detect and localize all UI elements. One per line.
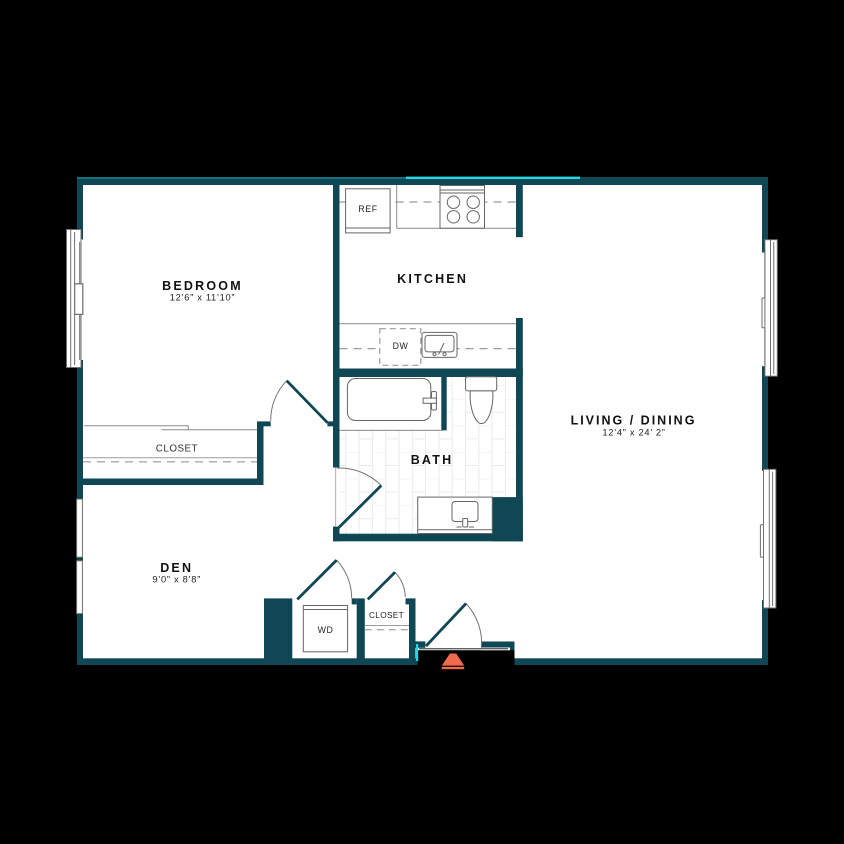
svg-text:BEDROOM: BEDROOM — [162, 279, 243, 293]
svg-text:DW: DW — [393, 341, 409, 351]
svg-text:BATH: BATH — [411, 453, 454, 467]
svg-text:LIVING / DINING: LIVING / DINING — [571, 414, 697, 428]
svg-text:12’4” x 24’ 2”: 12’4” x 24’ 2” — [602, 428, 665, 438]
svg-text:CLOSET: CLOSET — [156, 443, 198, 454]
svg-text:12’6” x 11’10”: 12’6” x 11’10” — [170, 293, 235, 303]
svg-text:KITCHEN: KITCHEN — [397, 272, 468, 286]
svg-text:REF: REF — [358, 204, 377, 214]
svg-text:CLOSET: CLOSET — [369, 610, 404, 620]
svg-text:9’0” x 8’8”: 9’0” x 8’8” — [152, 575, 201, 585]
svg-text:WD: WD — [318, 625, 334, 635]
svg-text:DEN: DEN — [160, 561, 193, 575]
